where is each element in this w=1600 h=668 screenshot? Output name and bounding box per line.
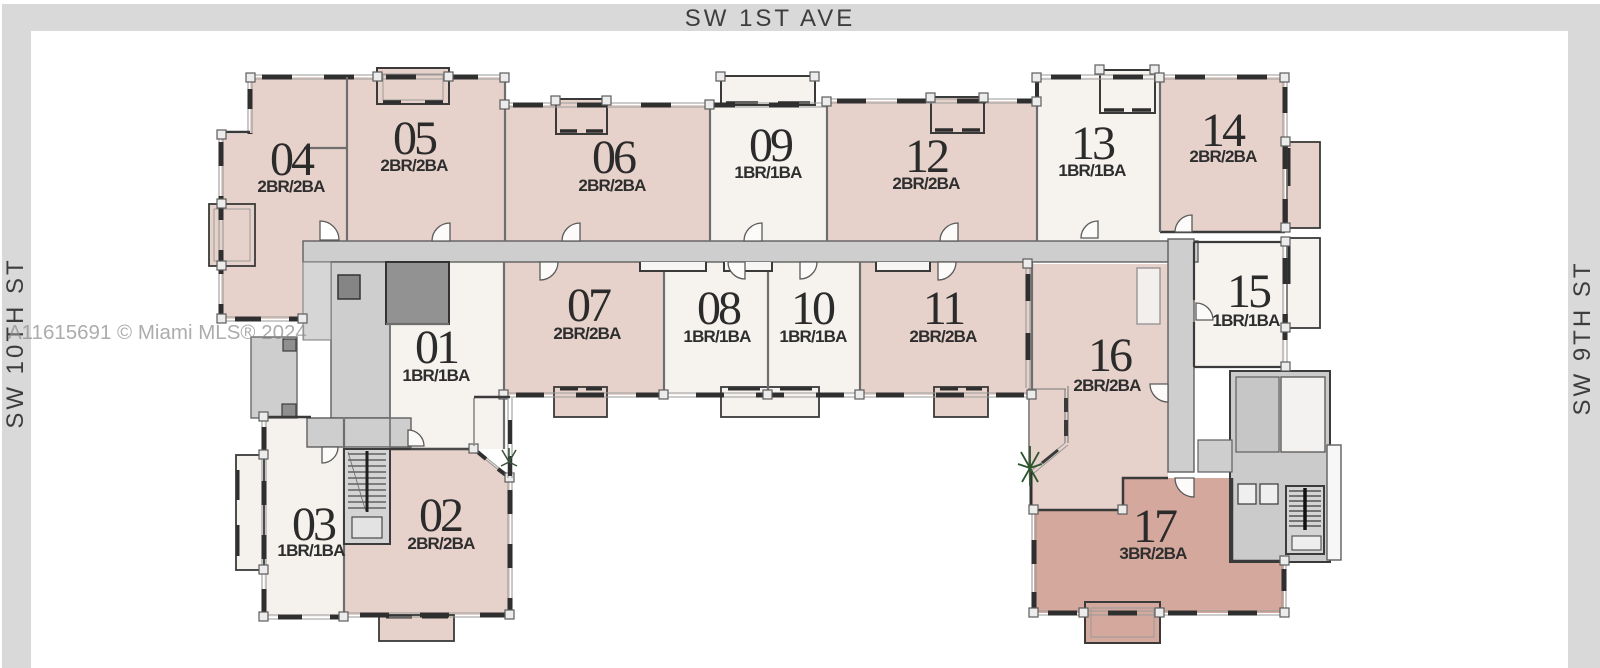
svg-text:2BR/2BA: 2BR/2BA: [257, 177, 325, 196]
svg-text:1BR/1BA: 1BR/1BA: [1212, 311, 1280, 330]
svg-text:A11615691 © Miami MLS® 2024: A11615691 © Miami MLS® 2024: [8, 321, 307, 344]
svg-text:SW 9TH ST: SW 9TH ST: [1569, 260, 1596, 415]
svg-text:2BR/2BA: 2BR/2BA: [380, 156, 448, 175]
svg-text:1BR/1BA: 1BR/1BA: [402, 366, 470, 385]
svg-text:SW 1ST AVE: SW 1ST AVE: [685, 5, 856, 32]
svg-text:1BR/1BA: 1BR/1BA: [683, 327, 751, 346]
svg-text:16: 16: [1088, 329, 1132, 382]
svg-text:2BR/2BA: 2BR/2BA: [553, 324, 621, 343]
svg-text:1BR/1BA: 1BR/1BA: [779, 327, 847, 346]
svg-text:2BR/2BA: 2BR/2BA: [1073, 376, 1141, 395]
svg-text:1BR/1BA: 1BR/1BA: [1058, 161, 1126, 180]
svg-text:3BR/2BA: 3BR/2BA: [1119, 544, 1187, 563]
svg-text:2BR/2BA: 2BR/2BA: [909, 327, 977, 346]
svg-text:2BR/2BA: 2BR/2BA: [578, 176, 646, 195]
svg-text:2BR/2BA: 2BR/2BA: [407, 534, 475, 553]
svg-text:2BR/2BA: 2BR/2BA: [892, 174, 960, 193]
svg-text:2BR/2BA: 2BR/2BA: [1189, 147, 1257, 166]
svg-text:1BR/1BA: 1BR/1BA: [734, 163, 802, 182]
svg-text:1BR/1BA: 1BR/1BA: [277, 541, 345, 560]
